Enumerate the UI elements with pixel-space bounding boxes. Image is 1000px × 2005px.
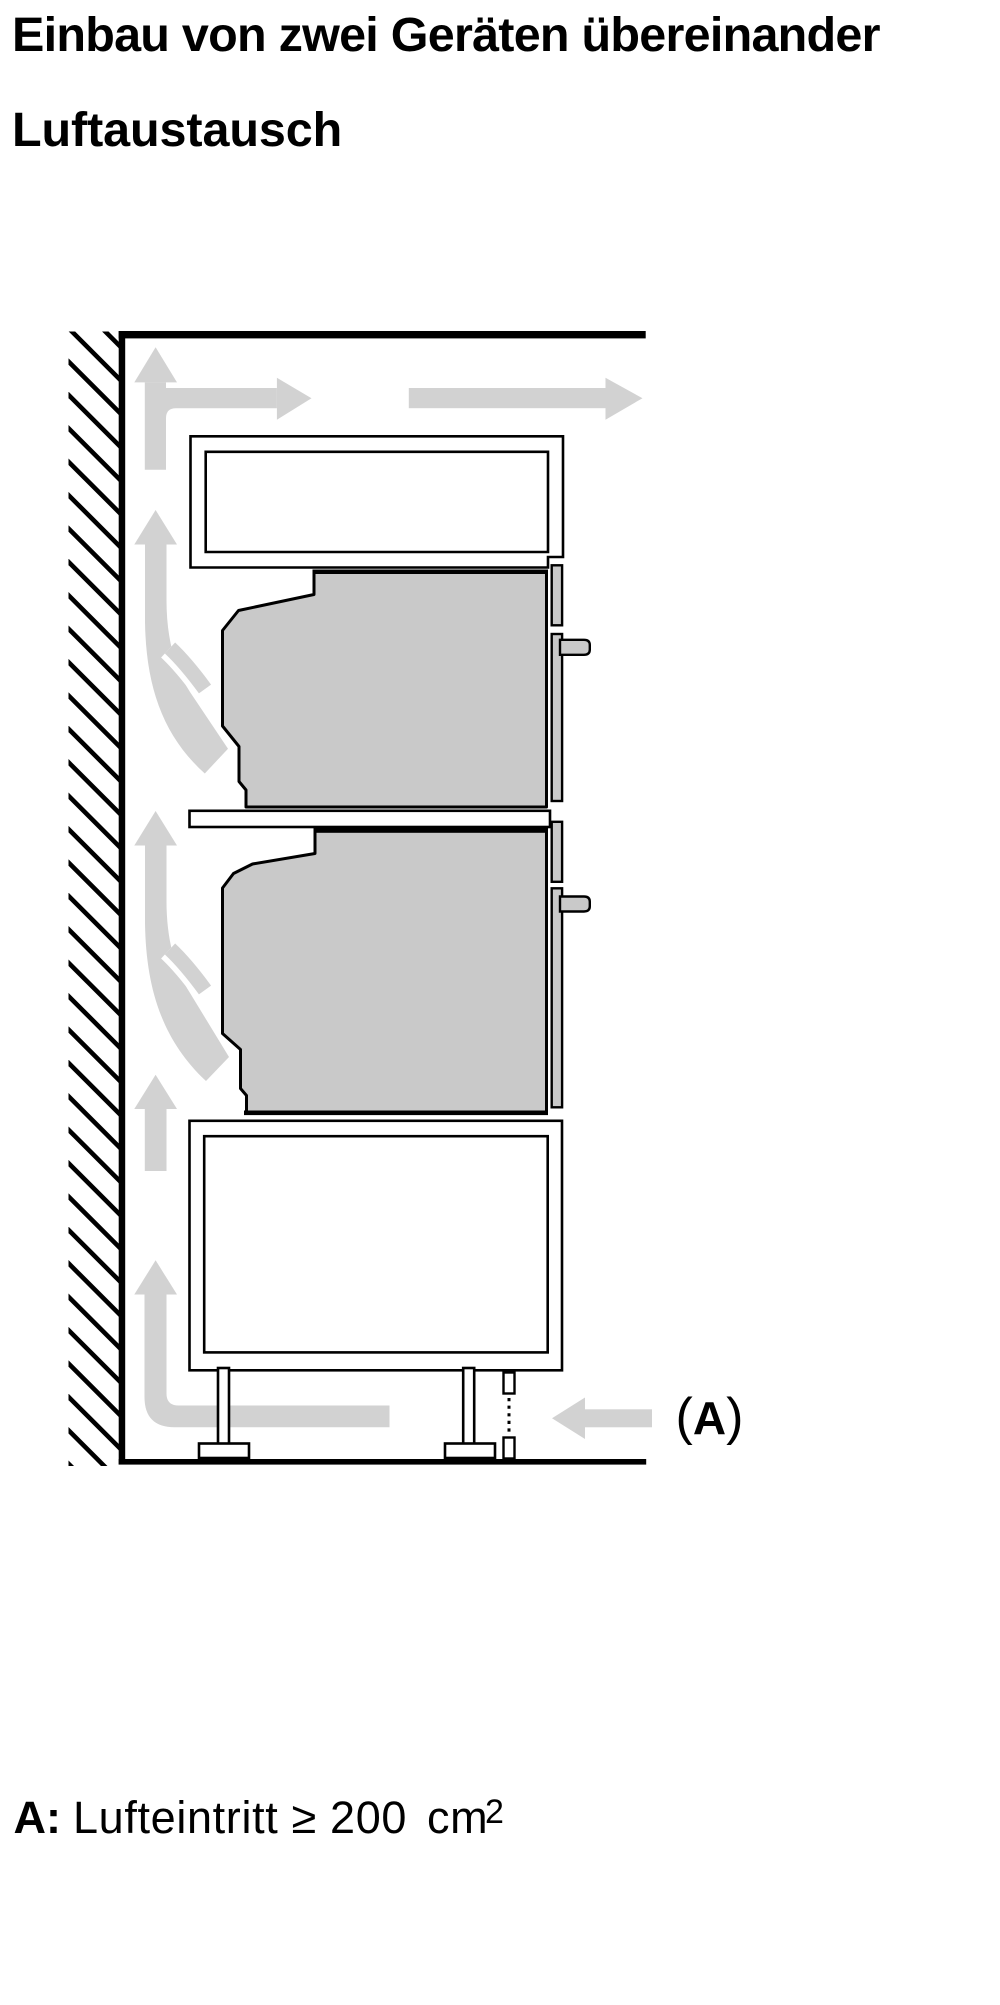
svg-text:Einbau von zwei Geräten überei: Einbau von zwei Geräten übereinander (12, 8, 881, 62)
svg-text:Luftaustausch: Luftaustausch (12, 103, 342, 157)
svg-text:(A): (A) (676, 1388, 744, 1446)
svg-text:A:Lufteintritt ≥ 200cm2: A:Lufteintritt ≥ 200cm2 (14, 1792, 504, 1843)
